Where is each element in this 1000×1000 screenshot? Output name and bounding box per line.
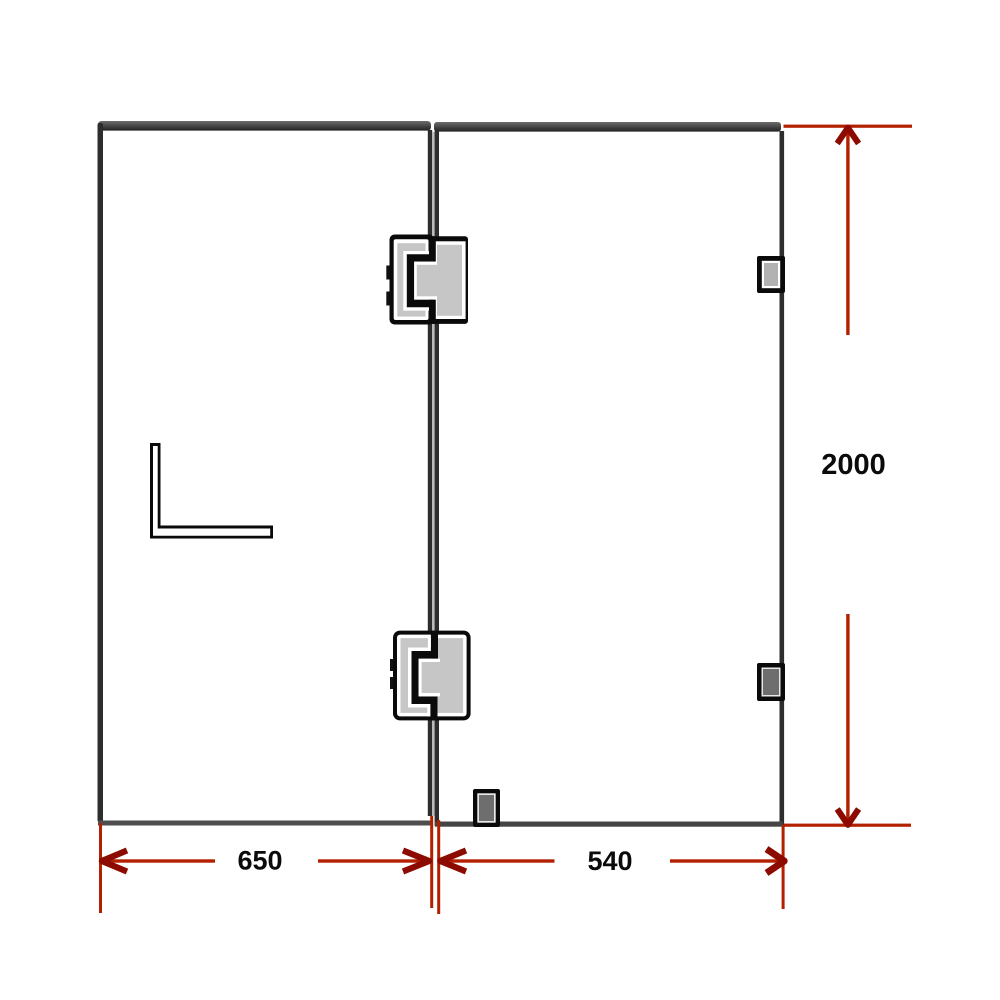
svg-text:540: 540 bbox=[587, 846, 632, 876]
svg-text:650: 650 bbox=[237, 846, 282, 876]
svg-text:2000: 2000 bbox=[821, 449, 886, 481]
